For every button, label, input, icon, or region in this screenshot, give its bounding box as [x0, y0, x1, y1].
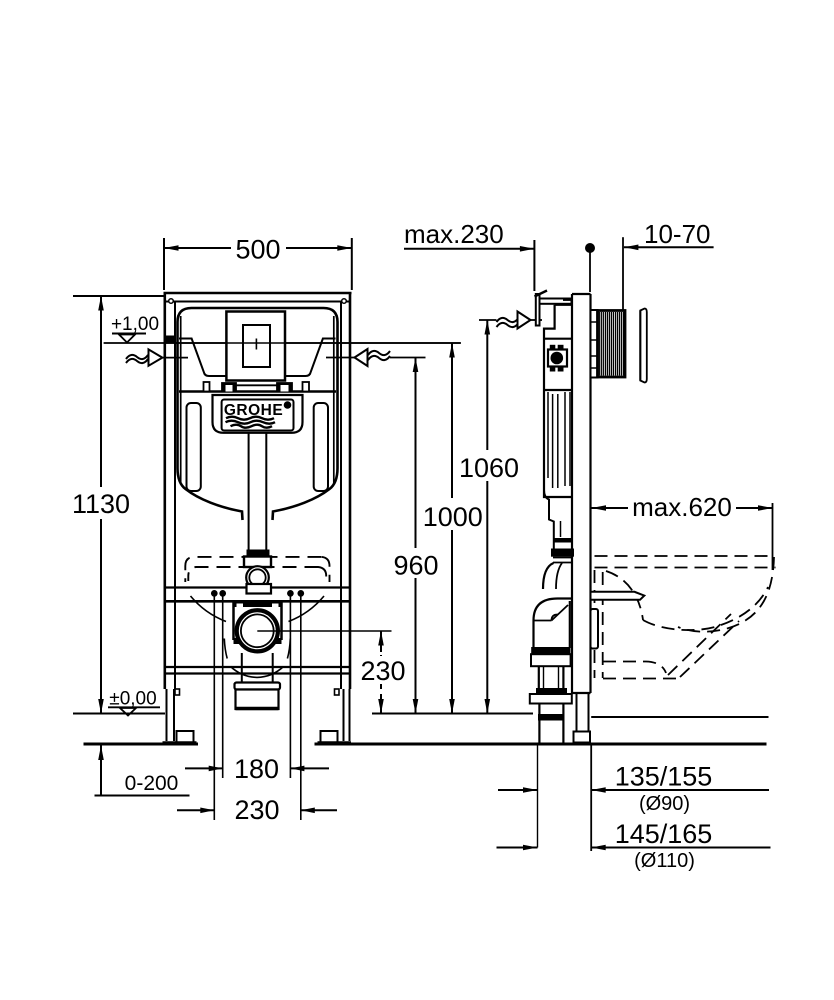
svg-text:145/165: 145/165: [615, 819, 713, 849]
svg-text:max.230: max.230: [404, 219, 504, 249]
svg-text:1060: 1060: [459, 453, 519, 483]
svg-text:1130: 1130: [72, 489, 130, 519]
svg-text:(Ø110): (Ø110): [634, 850, 695, 872]
svg-text:230: 230: [360, 656, 405, 686]
svg-text:0-200: 0-200: [125, 772, 179, 795]
svg-text:10-70: 10-70: [644, 219, 711, 249]
svg-text:+1,00: +1,00: [111, 314, 159, 335]
svg-text:180: 180: [234, 754, 279, 784]
svg-text:960: 960: [393, 551, 438, 581]
svg-text:±0,00: ±0,00: [109, 689, 156, 710]
svg-text:500: 500: [235, 235, 280, 265]
svg-text:(Ø90): (Ø90): [639, 793, 690, 815]
svg-text:230: 230: [234, 795, 279, 825]
svg-text:max.620: max.620: [632, 492, 732, 522]
svg-text:1000: 1000: [423, 502, 483, 532]
svg-text:135/155: 135/155: [615, 762, 713, 792]
